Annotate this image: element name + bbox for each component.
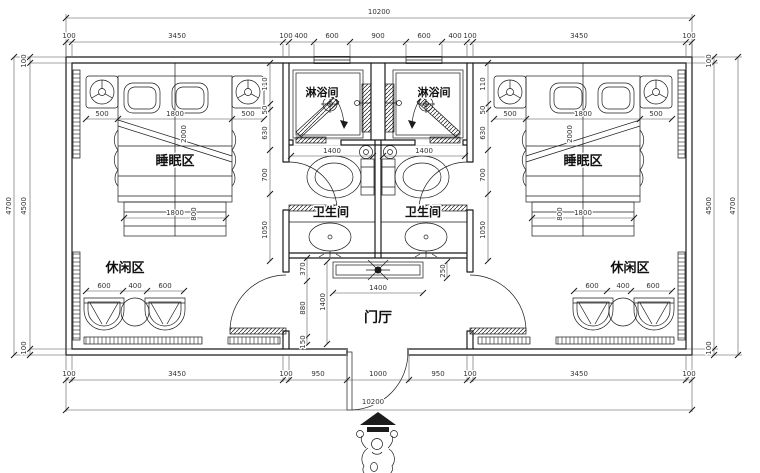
dim-lbench-w: 1800: [166, 209, 184, 217]
dim-top-9: 3450: [570, 32, 588, 40]
dim-rbed-length: 2000: [566, 125, 574, 143]
dim-bot-6: 100: [463, 370, 476, 378]
dim-bot-8: 100: [682, 370, 695, 378]
right-shower-room: [385, 70, 463, 143]
dim-hall-880: 880: [299, 301, 307, 314]
dim-right-bottom: 100: [705, 341, 713, 354]
label-leisure-left: 休闲区: [104, 260, 144, 276]
dim-left-top: 100: [20, 54, 28, 67]
label-sleeping-right: 睡眠区: [563, 153, 602, 169]
dim-hall-370: 370: [299, 262, 307, 275]
dim-bot-4: 1000: [369, 370, 387, 378]
entrance-person-marker: [357, 412, 398, 473]
dim-lbed-1800: 1800: [166, 110, 184, 118]
dim-rchain-3: 700: [479, 168, 487, 181]
dim-top-8: 100: [463, 32, 476, 40]
label-hall: 门厅: [364, 309, 392, 326]
dim-rchain-2: 630: [479, 126, 487, 139]
dim-top-5: 900: [371, 32, 384, 40]
dim-top-total: 10200: [368, 8, 390, 16]
dim-top-10: 100: [682, 32, 695, 40]
right-leisure-furniture: [573, 298, 674, 330]
dim-top-4: 600: [325, 32, 338, 40]
dim-lchain-0: 110: [261, 77, 269, 90]
dim-lbath-1400: 1400: [323, 147, 341, 155]
dim-top-0: 100: [62, 32, 75, 40]
dim-llei-600a: 600: [97, 282, 110, 290]
dim-lchain-2: 630: [261, 126, 269, 139]
dim-rlei-600a: 600: [585, 282, 598, 290]
bathrooms: [289, 146, 467, 258]
dim-hall-height: 1400: [319, 293, 327, 311]
dim-right-top: 100: [705, 54, 713, 67]
dim-llei-400: 400: [128, 282, 141, 290]
dim-bottom-total: 10200: [362, 398, 384, 406]
dim-right-inner: 4500: [705, 197, 713, 215]
dim-rlei-400: 400: [616, 282, 629, 290]
dim-llei-600b: 600: [158, 282, 171, 290]
dim-rbed-500a: 500: [503, 110, 516, 118]
entrance-hall: [230, 260, 526, 410]
dim-counter-d: 250: [439, 264, 447, 277]
dim-rchain-4: 1050: [479, 221, 487, 239]
dim-lbench-d: 800: [190, 207, 198, 220]
dim-bot-7: 3450: [570, 370, 588, 378]
label-toilet-left: 卫生间: [313, 204, 349, 219]
dim-left-inner: 4500: [20, 197, 28, 215]
dim-hall-150: 150: [299, 335, 307, 348]
dim-lchain-1: 50: [261, 106, 269, 115]
left-leisure-furniture: [84, 298, 185, 330]
dim-bot-1: 3450: [168, 370, 186, 378]
label-shower-left: 淋浴间: [306, 85, 339, 99]
floorplan-canvas: 10200 100 3450 100 400 600 900 600 400 1…: [0, 0, 760, 473]
dim-right-outer: 4700: [729, 197, 737, 215]
dim-lchain-4: 1050: [261, 221, 269, 239]
dim-lbed-500b: 500: [241, 110, 254, 118]
dim-bot-3: 950: [311, 370, 324, 378]
dim-rbed-500b: 500: [649, 110, 662, 118]
label-shower-right: 淋浴间: [418, 85, 451, 99]
left-shower-room: [293, 70, 371, 143]
dim-rbath-1400: 1400: [415, 147, 433, 155]
dim-lchain-3: 700: [261, 168, 269, 181]
dim-lbed-length: 2000: [180, 125, 188, 143]
dim-bot-0: 100: [62, 370, 75, 378]
dim-bot-5: 950: [431, 370, 444, 378]
dim-bot-2: 100: [279, 370, 292, 378]
label-toilet-right: 卫生间: [405, 204, 441, 219]
dim-top-3: 400: [294, 32, 307, 40]
label-leisure-right: 休闲区: [609, 260, 649, 276]
dim-top-2: 100: [279, 32, 292, 40]
floor-plan-sheet: 10200 100 3450 100 400 600 900 600 400 1…: [0, 0, 760, 473]
dim-rbed-1800: 1800: [574, 110, 592, 118]
dim-top-7: 400: [448, 32, 461, 40]
dim-top-6: 600: [417, 32, 430, 40]
dim-left-outer: 4700: [5, 197, 13, 215]
dim-left-bottom: 100: [20, 341, 28, 354]
dim-rbench-d: 800: [556, 207, 564, 220]
dim-rchain-1: 50: [479, 106, 487, 115]
dim-rlei-600b: 600: [646, 282, 659, 290]
dim-rbench-w: 1800: [574, 209, 592, 217]
dim-counter-w: 1400: [369, 284, 387, 292]
dim-top-1: 3450: [168, 32, 186, 40]
dim-rchain-0: 110: [479, 77, 487, 90]
dim-lbed-500a: 500: [95, 110, 108, 118]
label-sleeping-left: 睡眠区: [155, 153, 194, 169]
